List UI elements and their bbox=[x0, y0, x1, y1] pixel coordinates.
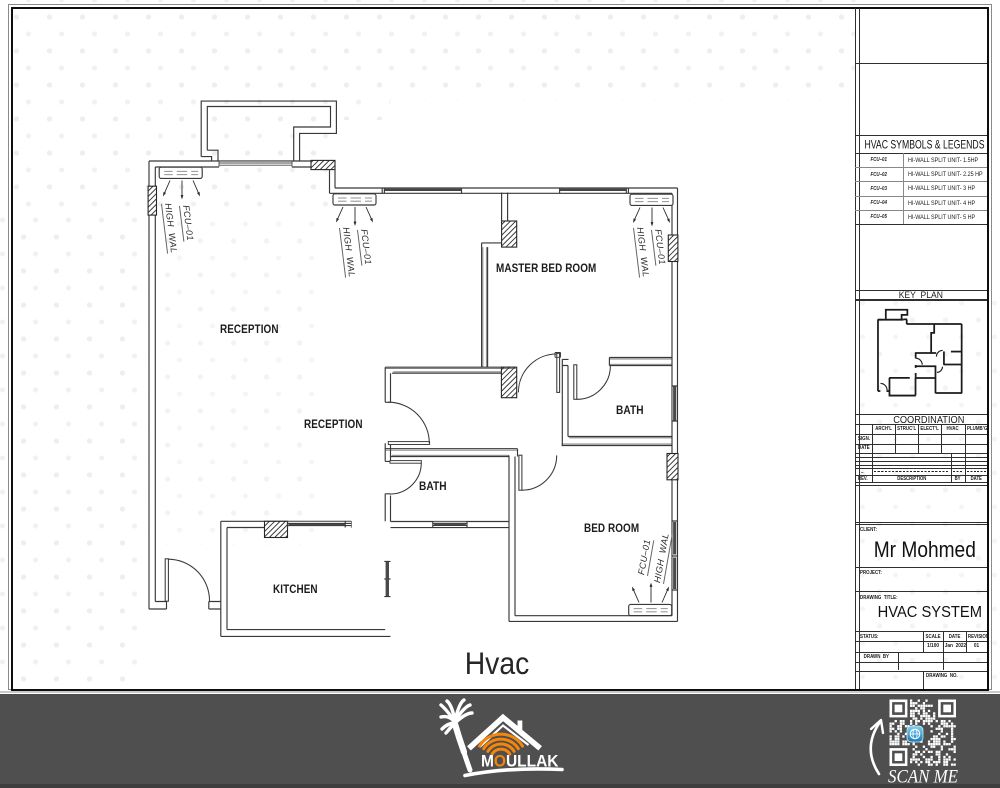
svg-text:HVAC SYMBOLS & LEGENDS: HVAC SYMBOLS & LEGENDS bbox=[865, 138, 985, 152]
svg-text:SCAN ME: SCAN ME bbox=[888, 767, 958, 788]
svg-text:MOULLAK: MOULLAK bbox=[481, 751, 559, 770]
